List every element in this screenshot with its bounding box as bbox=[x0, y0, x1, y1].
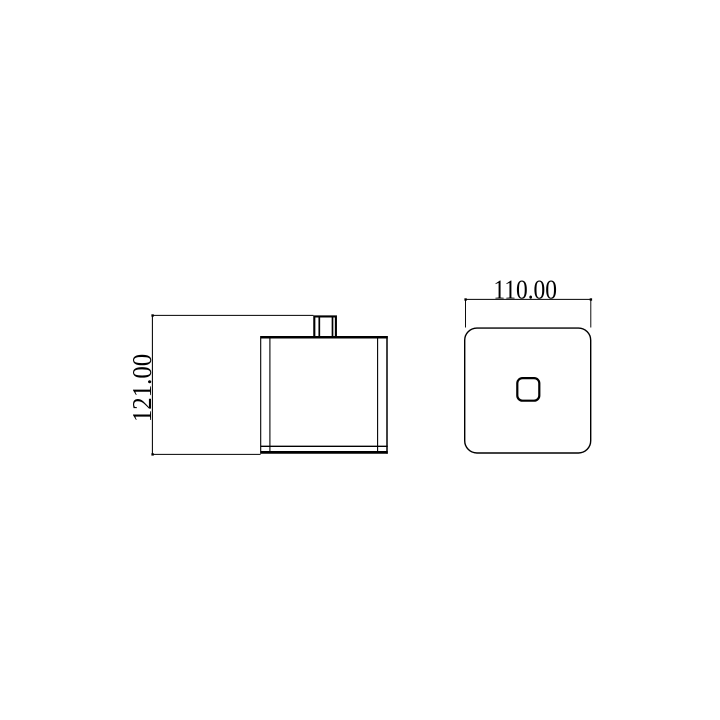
svg-text:121.00: 121.00 bbox=[127, 354, 157, 422]
svg-text:110.00: 110.00 bbox=[493, 275, 557, 305]
